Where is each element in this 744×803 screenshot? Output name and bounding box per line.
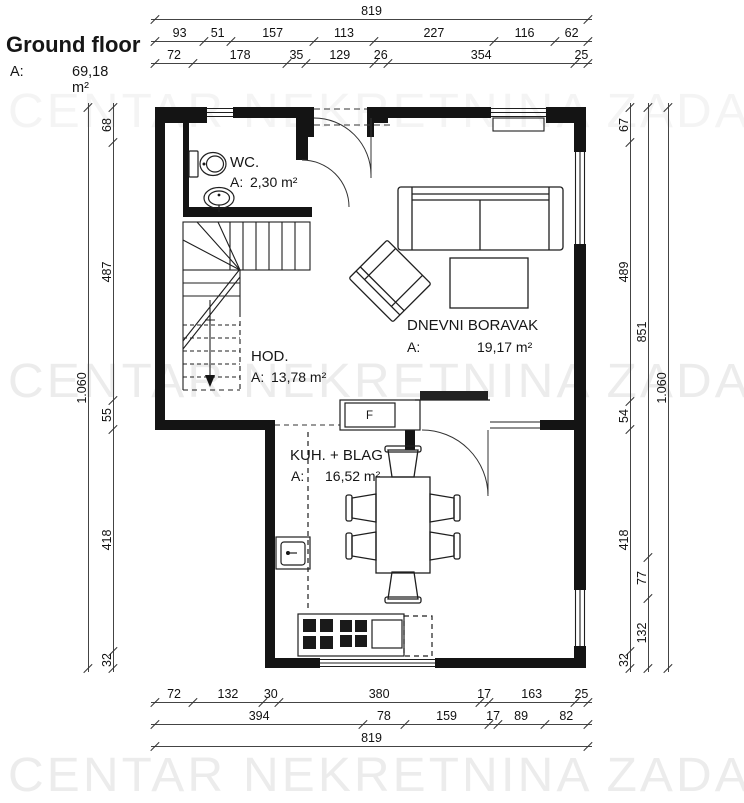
title-area-label: A:: [10, 64, 24, 80]
kitchen-fixtures: [276, 391, 490, 656]
dim-label: 132: [635, 623, 649, 644]
cooker-hood: [420, 391, 488, 400]
dim-line: [113, 103, 114, 672]
dim-label: 17: [486, 709, 500, 723]
toilet-tank: [189, 151, 198, 177]
dim-label: 227: [423, 26, 444, 40]
dim-chain-bottom-total: 819: [155, 731, 588, 749]
dim-label: 116: [515, 26, 535, 40]
kitchen-sink: [276, 537, 310, 569]
dim-label: 72: [167, 687, 181, 701]
stairs: [183, 222, 310, 390]
wc-area-label: A:: [230, 174, 243, 190]
dim-label: 78: [377, 709, 391, 723]
dim-label: 178: [230, 48, 251, 62]
dim-chain-left-inner: 684875541832: [100, 107, 120, 668]
stair-winders: [183, 222, 240, 270]
wc-label: WC.: [230, 154, 259, 171]
chair-top: [385, 446, 421, 477]
living-area-label: A:: [407, 339, 420, 355]
living-area-value: 19,17 m²: [477, 339, 533, 355]
kitchen-label: KUH. + BLAG: [290, 447, 383, 464]
dim-label: 72: [167, 48, 181, 62]
dim-label: 25: [574, 687, 588, 701]
dim-chain-top-total: 819: [155, 4, 588, 22]
dim-line: [630, 103, 631, 672]
wc-fixtures: [189, 151, 234, 212]
kitchen-door-arc: [422, 430, 488, 496]
chair-left-2: [346, 532, 376, 560]
doors: [275, 109, 488, 496]
chair-left-1: [346, 494, 376, 522]
dim-line: [648, 103, 649, 672]
dim-label: 32: [617, 653, 631, 667]
dim-label: 418: [100, 530, 114, 551]
dim-line: [151, 724, 592, 725]
dim-label: 55: [100, 408, 114, 422]
kitchen-area-value: 16,52 m²: [325, 468, 381, 484]
room-labels: WC. A: 2,30 m² HOD. A: 13,78 m² DNEVNI B…: [230, 154, 538, 484]
burners: [303, 619, 367, 649]
chair-right-1: [430, 494, 460, 522]
hall-area-label: A:: [251, 369, 264, 385]
dim-chain-right-outer: 1.060: [655, 107, 675, 668]
dim-chain-top-row3: 72178351292635425: [155, 48, 588, 66]
dim-label: 62: [565, 26, 579, 40]
chair-right-2: [430, 532, 460, 560]
dim-label: 35: [289, 48, 303, 62]
dim-label: 157: [262, 26, 283, 40]
dim-label: 26: [374, 48, 388, 62]
entrance-door-arc: [314, 118, 371, 175]
dim-label: 25: [574, 48, 588, 62]
dim-label: 159: [436, 709, 457, 723]
stove: [298, 614, 432, 656]
page-title: Ground floor: [6, 32, 140, 58]
dim-label: 93: [173, 26, 187, 40]
dim-label: 82: [559, 709, 573, 723]
dim-chain-left-outer: 1.060: [75, 107, 95, 668]
dining-table: [376, 477, 430, 573]
dim-label: 380: [369, 687, 390, 701]
stair-arrow-down: [205, 375, 215, 387]
dim-chain-right-inner: 674895441832: [617, 107, 637, 668]
dim-label: 819: [361, 4, 382, 18]
living-label: DNEVNI BORAVAK: [407, 317, 538, 334]
title-area-value: 69,18 m²: [72, 64, 108, 96]
dim-label: 819: [361, 731, 382, 745]
dim-label: 418: [617, 530, 631, 551]
dim-label: 394: [249, 709, 270, 723]
dim-chain-bottom-row2: 39478159178982: [155, 709, 588, 727]
dim-label: 17: [477, 687, 491, 701]
dim-chain-top-row2: 935115711322711662: [155, 26, 588, 44]
fridge-label: F: [366, 410, 373, 422]
dim-label: 68: [100, 118, 114, 132]
dim-line: [151, 702, 592, 703]
coffee-table: [450, 258, 528, 308]
kitchen-counter-top: [340, 400, 420, 430]
dim-label: 489: [617, 261, 631, 282]
dim-line: [151, 746, 592, 747]
radiator: [493, 118, 544, 131]
dim-label: 113: [334, 26, 354, 40]
dim-label: 1.060: [75, 372, 89, 403]
chair-bottom: [385, 572, 421, 603]
kitchen-area-label: A:: [291, 468, 304, 484]
armchair: [349, 240, 431, 322]
dim-label: 851: [635, 322, 649, 343]
dim-label: 54: [617, 409, 631, 423]
dim-label: 67: [617, 118, 631, 132]
dim-chain-bottom-row1: 72132303801716325: [155, 687, 588, 705]
dim-label: 354: [471, 48, 492, 62]
dim-label: 163: [521, 687, 542, 701]
dim-label: 487: [100, 261, 114, 282]
dim-label: 1.060: [655, 372, 669, 403]
dim-label: 77: [635, 571, 649, 585]
dim-label: 32: [100, 653, 114, 667]
hall-area-value: 13,78 m²: [271, 369, 327, 385]
stair-cut-line: [183, 269, 240, 349]
windows: [207, 109, 585, 667]
dim-label: 89: [514, 709, 528, 723]
wc-door-arc: [302, 160, 349, 207]
dim-label: 129: [329, 48, 350, 62]
wc-area-value: 2,30 m²: [250, 174, 298, 190]
sofa: [398, 187, 563, 250]
dim-line: [151, 19, 592, 20]
dim-label: 132: [218, 687, 239, 701]
dim-label: 30: [264, 687, 278, 701]
dim-label: 51: [211, 26, 225, 40]
hall-label: HOD.: [251, 348, 289, 365]
living-furniture: [349, 187, 563, 322]
dim-chain-right-middle: 85177132: [635, 107, 655, 668]
